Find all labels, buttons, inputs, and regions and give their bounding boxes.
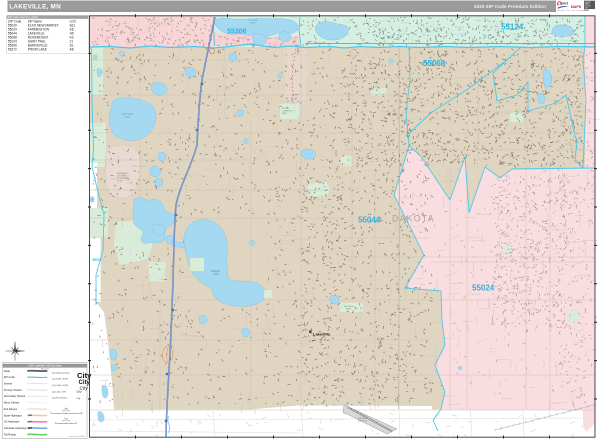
svg-text:2020: 2020 bbox=[585, 8, 589, 10]
svg-text:arket: arket bbox=[560, 2, 569, 6]
svg-text:City: City bbox=[76, 390, 82, 394]
svg-text:Toll Roads: Toll Roads bbox=[4, 432, 17, 436]
svg-text:55306: 55306 bbox=[227, 29, 247, 36]
svg-text:LAKE: LAKE bbox=[250, 22, 256, 25]
svg-text:Streets: Streets bbox=[4, 382, 13, 386]
svg-text:Sold ZIP: Sold ZIP bbox=[585, 2, 591, 4]
svg-text:Lakeville: Lakeville bbox=[313, 332, 331, 337]
svg-text:55024: 55024 bbox=[472, 284, 495, 293]
svg-text:US Highways: US Highways bbox=[4, 420, 20, 424]
svg-text:City 1,000 - 9,999: City 1,000 - 9,999 bbox=[52, 390, 66, 393]
svg-text:2020 Lakeville, MN City Map: 2020 Lakeville, MN City Map bbox=[28, 364, 62, 368]
svg-text:55124: 55124 bbox=[501, 23, 524, 32]
svg-text:1 mile: 1 mile bbox=[64, 408, 69, 410]
svg-text:Exit Ramps: Exit Ramps bbox=[4, 407, 18, 411]
svg-text:55044: 55044 bbox=[358, 216, 381, 225]
svg-text:City 50,000 and above: City 50,000 and above bbox=[52, 371, 70, 374]
svg-text:ZIP Code Inventory Listing: ZIP Code Inventory Listing bbox=[8, 15, 39, 19]
svg-text:LAKE: LAKE bbox=[124, 116, 131, 119]
svg-text:Interstate Highways: Interstate Highways bbox=[4, 426, 27, 430]
svg-text:Minor Streets: Minor Streets bbox=[4, 401, 20, 405]
svg-text:City: City bbox=[77, 371, 92, 380]
svg-text:MAPS: MAPS bbox=[571, 5, 582, 9]
svg-text:Secondary Streets: Secondary Streets bbox=[4, 394, 26, 398]
svg-text:55372: 55372 bbox=[8, 48, 17, 52]
svg-text:City 25,000 - 49,999: City 25,000 - 49,999 bbox=[52, 378, 68, 381]
svg-text:City 10,000 - 24,999: City 10,000 - 24,999 bbox=[52, 384, 68, 387]
svg-text:AIRPORT: AIRPORT bbox=[358, 420, 368, 423]
svg-text:2020 ZIP Code Premium Edition: 2020 ZIP Code Premium Edition bbox=[474, 4, 546, 10]
svg-text:LAKE: LAKE bbox=[213, 273, 219, 276]
svg-text:A8: A8 bbox=[70, 48, 74, 52]
svg-text:PARK: PARK bbox=[346, 308, 352, 311]
svg-text:55068: 55068 bbox=[423, 59, 446, 68]
svg-text:Primary Streets: Primary Streets bbox=[4, 388, 23, 392]
svg-text:1 km: 1 km bbox=[64, 418, 68, 420]
svg-text:MARION: MARION bbox=[211, 270, 221, 273]
svg-text:DAKOTA: DAKOTA bbox=[392, 214, 435, 224]
svg-text:State Highways: State Highways bbox=[4, 413, 23, 417]
svg-text:55372: 55372 bbox=[93, 258, 102, 262]
svg-text:State: State bbox=[4, 369, 11, 373]
svg-text:City 999 and below: City 999 and below bbox=[52, 397, 68, 400]
svg-text:CLUB: CLUB bbox=[117, 181, 123, 183]
svg-text:ZIP Code: ZIP Code bbox=[4, 375, 15, 379]
svg-text:City: City bbox=[79, 380, 91, 386]
svg-text:LAKEVILLE, MN: LAKEVILLE, MN bbox=[9, 3, 61, 10]
svg-text:PARK: PARK bbox=[282, 112, 288, 115]
svg-text:PRIOR LAKE: PRIOR LAKE bbox=[28, 48, 47, 52]
